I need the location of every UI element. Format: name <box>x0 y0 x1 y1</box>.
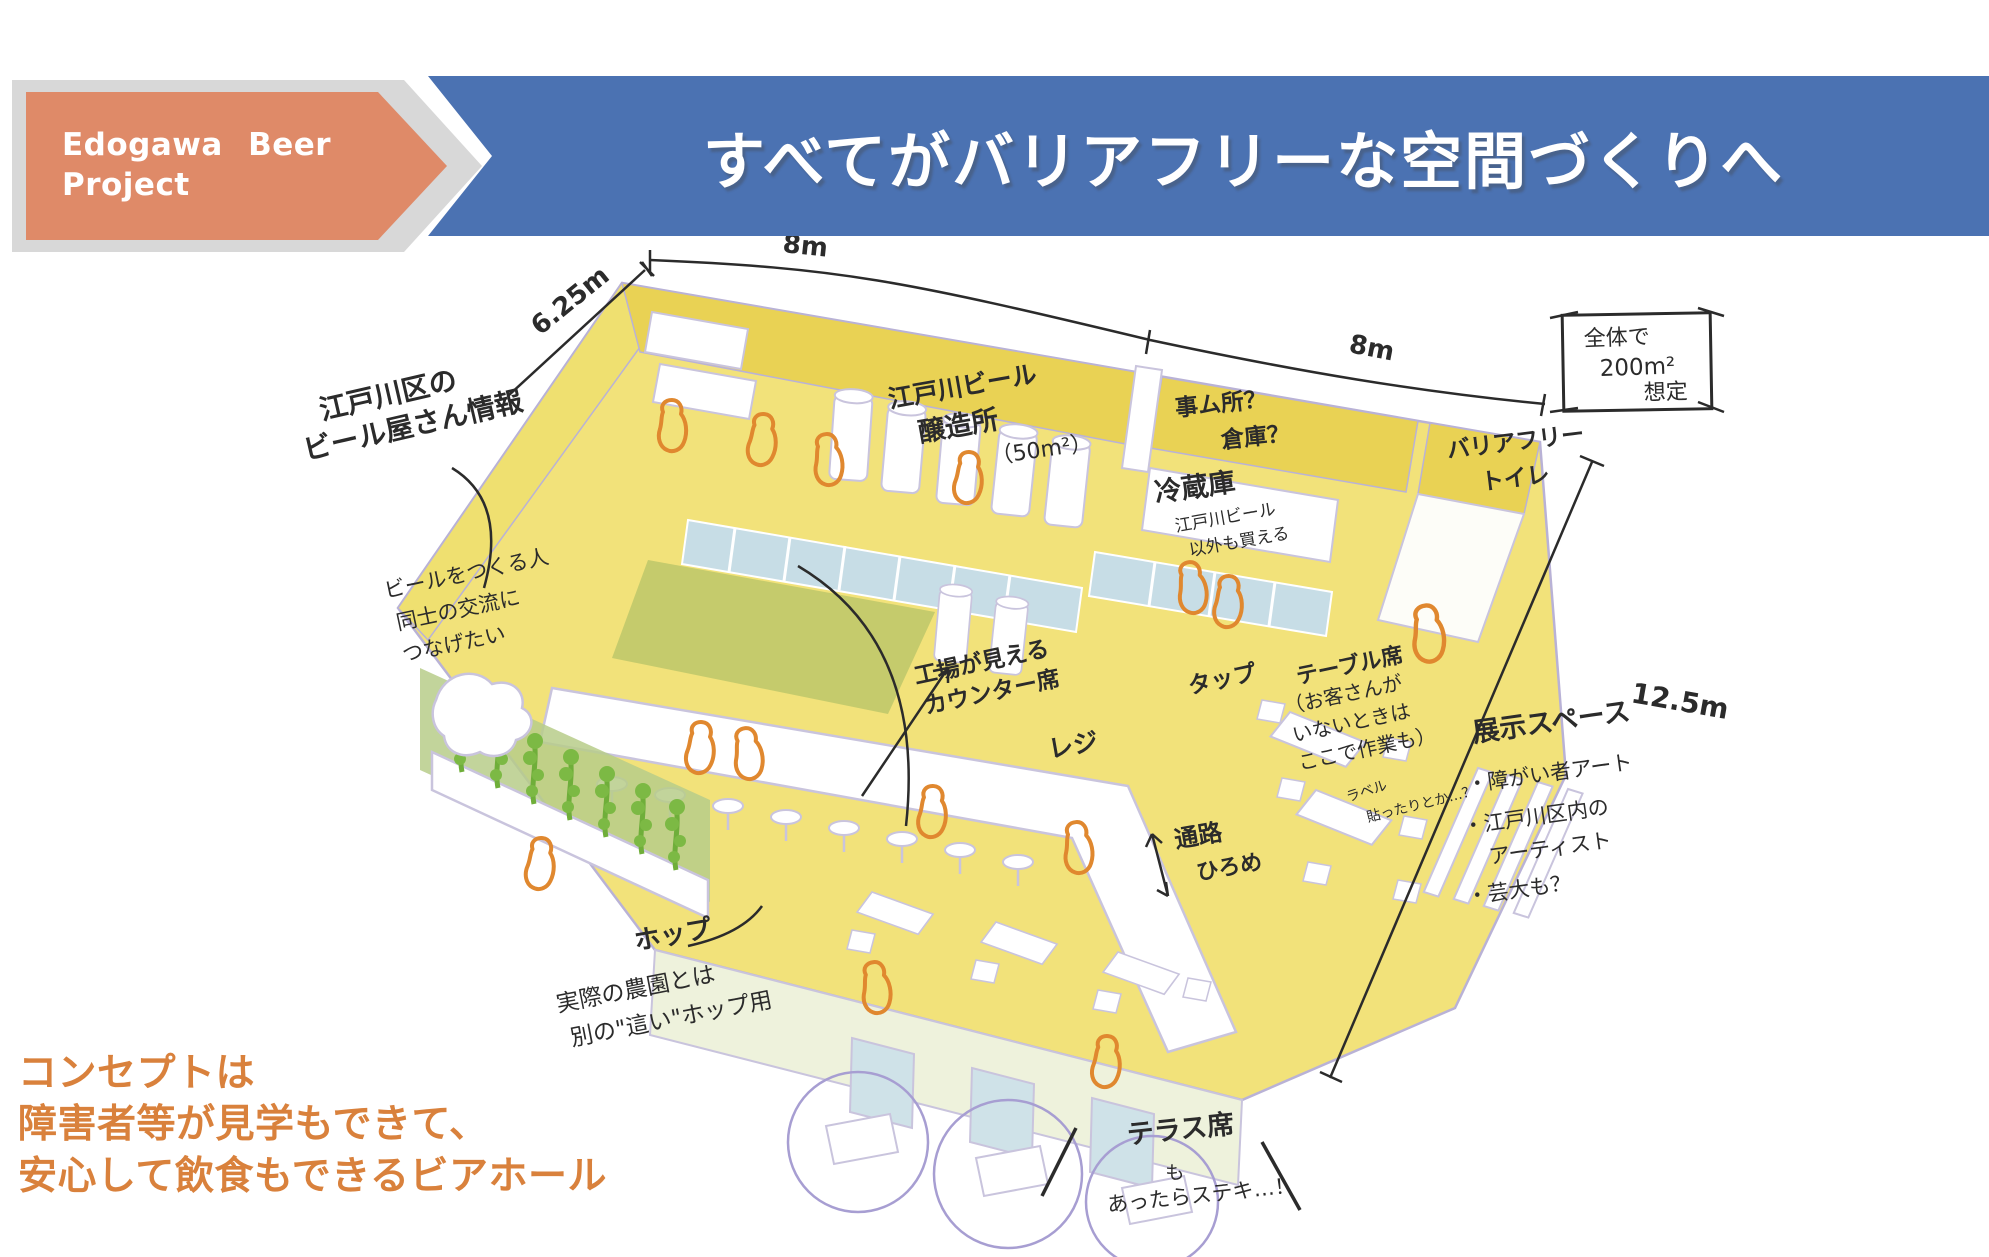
dim-12-5m: 12.5m <box>1629 676 1732 726</box>
total-area-line1: 全体で <box>1583 325 1650 352</box>
concept-line1: コンセプトは <box>18 1048 607 1099</box>
title-banner: すべてがバリアフリーな空間づくりへ <box>428 76 1989 236</box>
project-label-line2: Project <box>62 166 448 206</box>
project-label-arrow: Edogawa Beer Project <box>26 92 448 240</box>
total-area-line3: 想定 <box>1643 379 1688 406</box>
concept-line3: 安心して飲食もできるビアホール <box>18 1151 607 1202</box>
project-label-line1: Edogawa Beer <box>62 126 448 166</box>
dim-8m-right: 8m <box>1347 329 1397 367</box>
total-area-line2: 200m² <box>1599 353 1675 382</box>
concept-text: コンセプトは 障害者等が見学もできて、 安心して飲食もできるビアホール <box>18 1048 607 1202</box>
slide-title: すべてがバリアフリーな空間づくりへ <box>633 111 1784 201</box>
concept-line2: 障害者等が見学もできて、 <box>18 1099 607 1150</box>
terrace-line2: も <box>1164 1161 1185 1185</box>
